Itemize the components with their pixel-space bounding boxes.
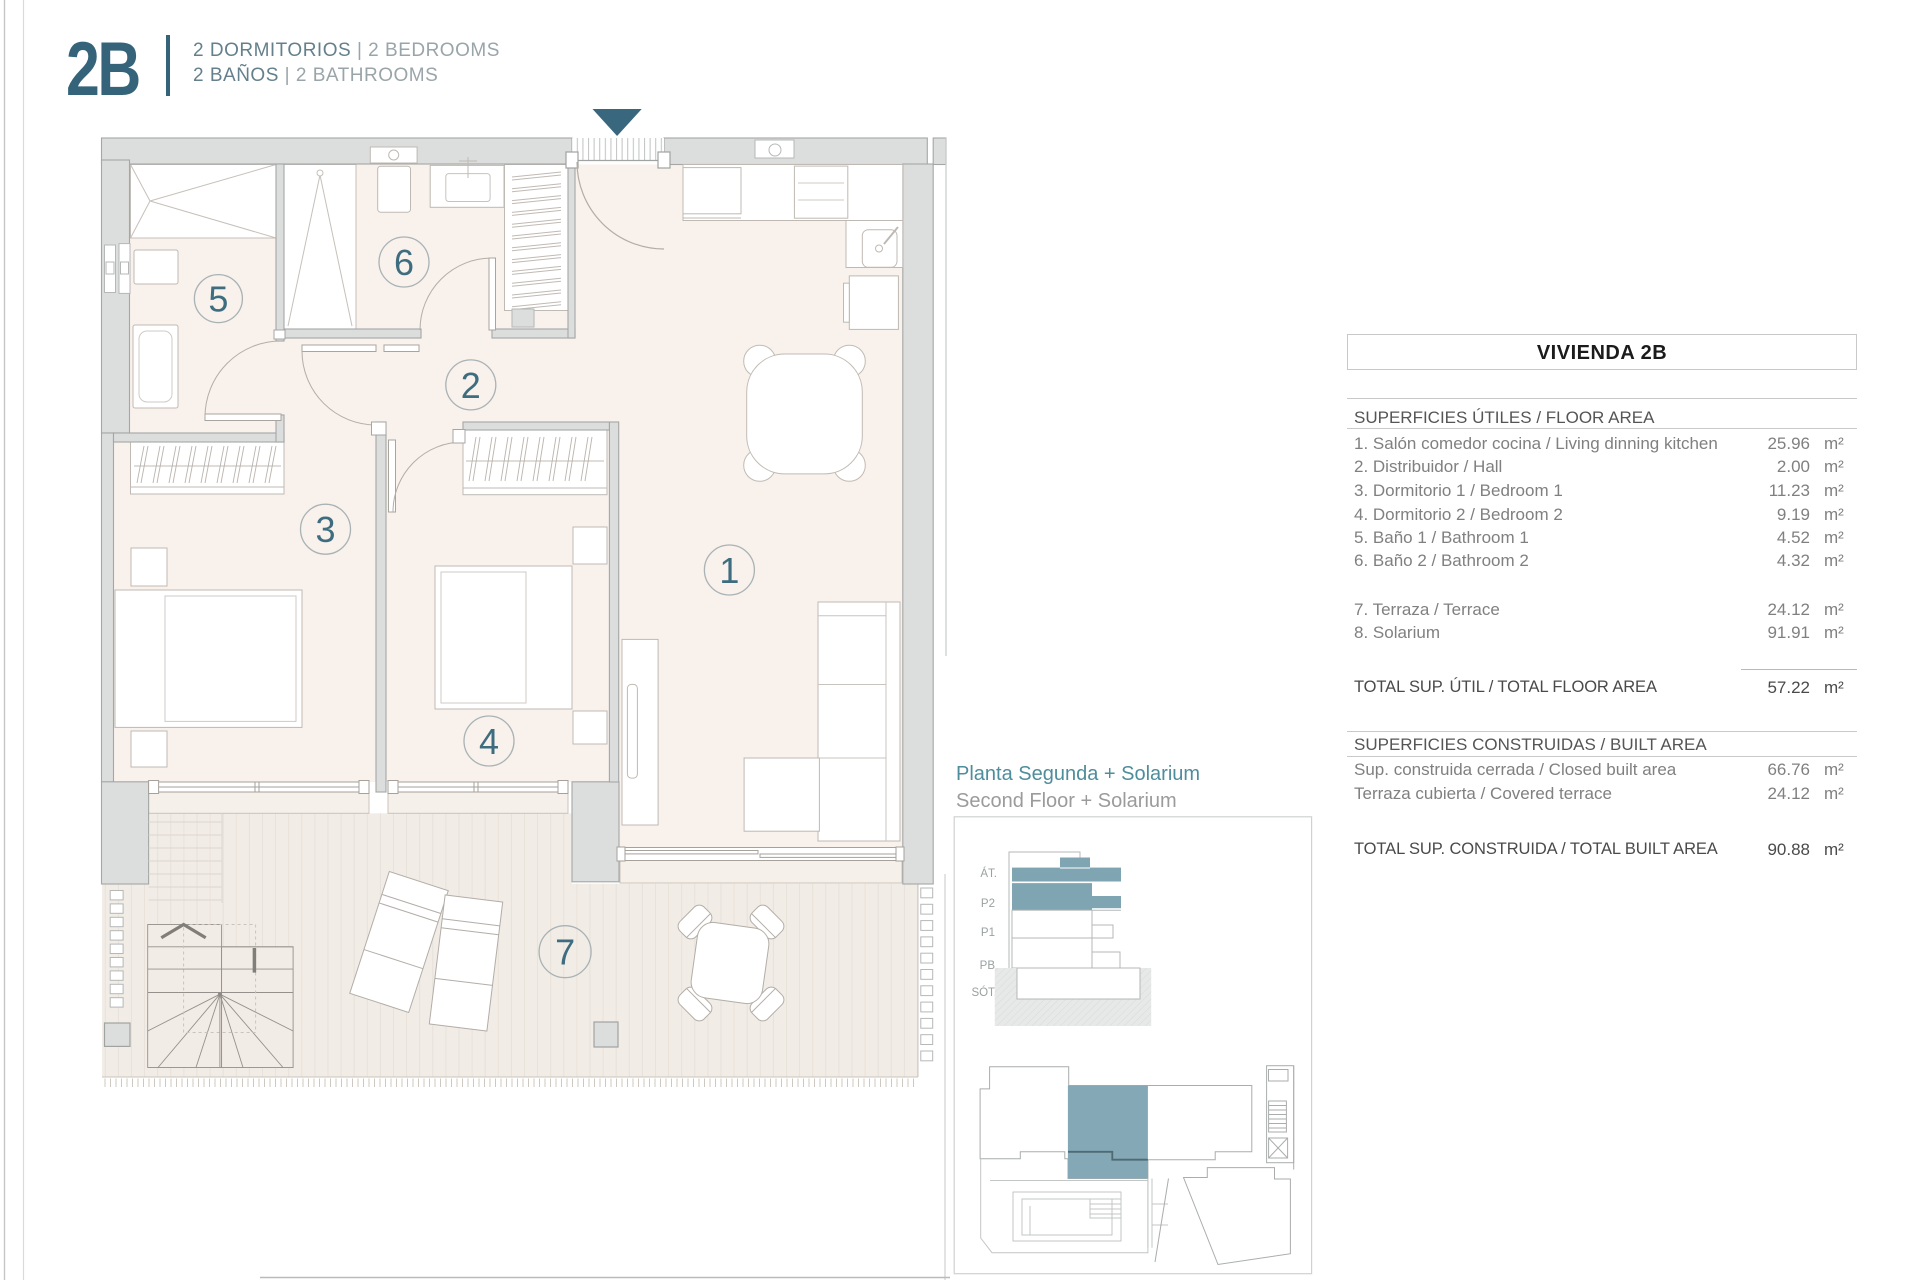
- svg-text:3: 3: [315, 509, 335, 550]
- svg-text:5: 5: [208, 279, 228, 320]
- svg-text:2: 2: [461, 365, 481, 406]
- svg-text:PB: PB: [980, 960, 996, 972]
- svg-text:4: 4: [479, 721, 499, 762]
- svg-text:6: 6: [394, 242, 414, 283]
- svg-text:ÁT.: ÁT.: [980, 867, 997, 880]
- svg-text:P2: P2: [981, 898, 995, 910]
- svg-text:1: 1: [719, 550, 739, 591]
- svg-text:7: 7: [555, 932, 575, 973]
- svg-text:P1: P1: [981, 927, 995, 939]
- svg-text:SÓT.: SÓT.: [971, 986, 997, 999]
